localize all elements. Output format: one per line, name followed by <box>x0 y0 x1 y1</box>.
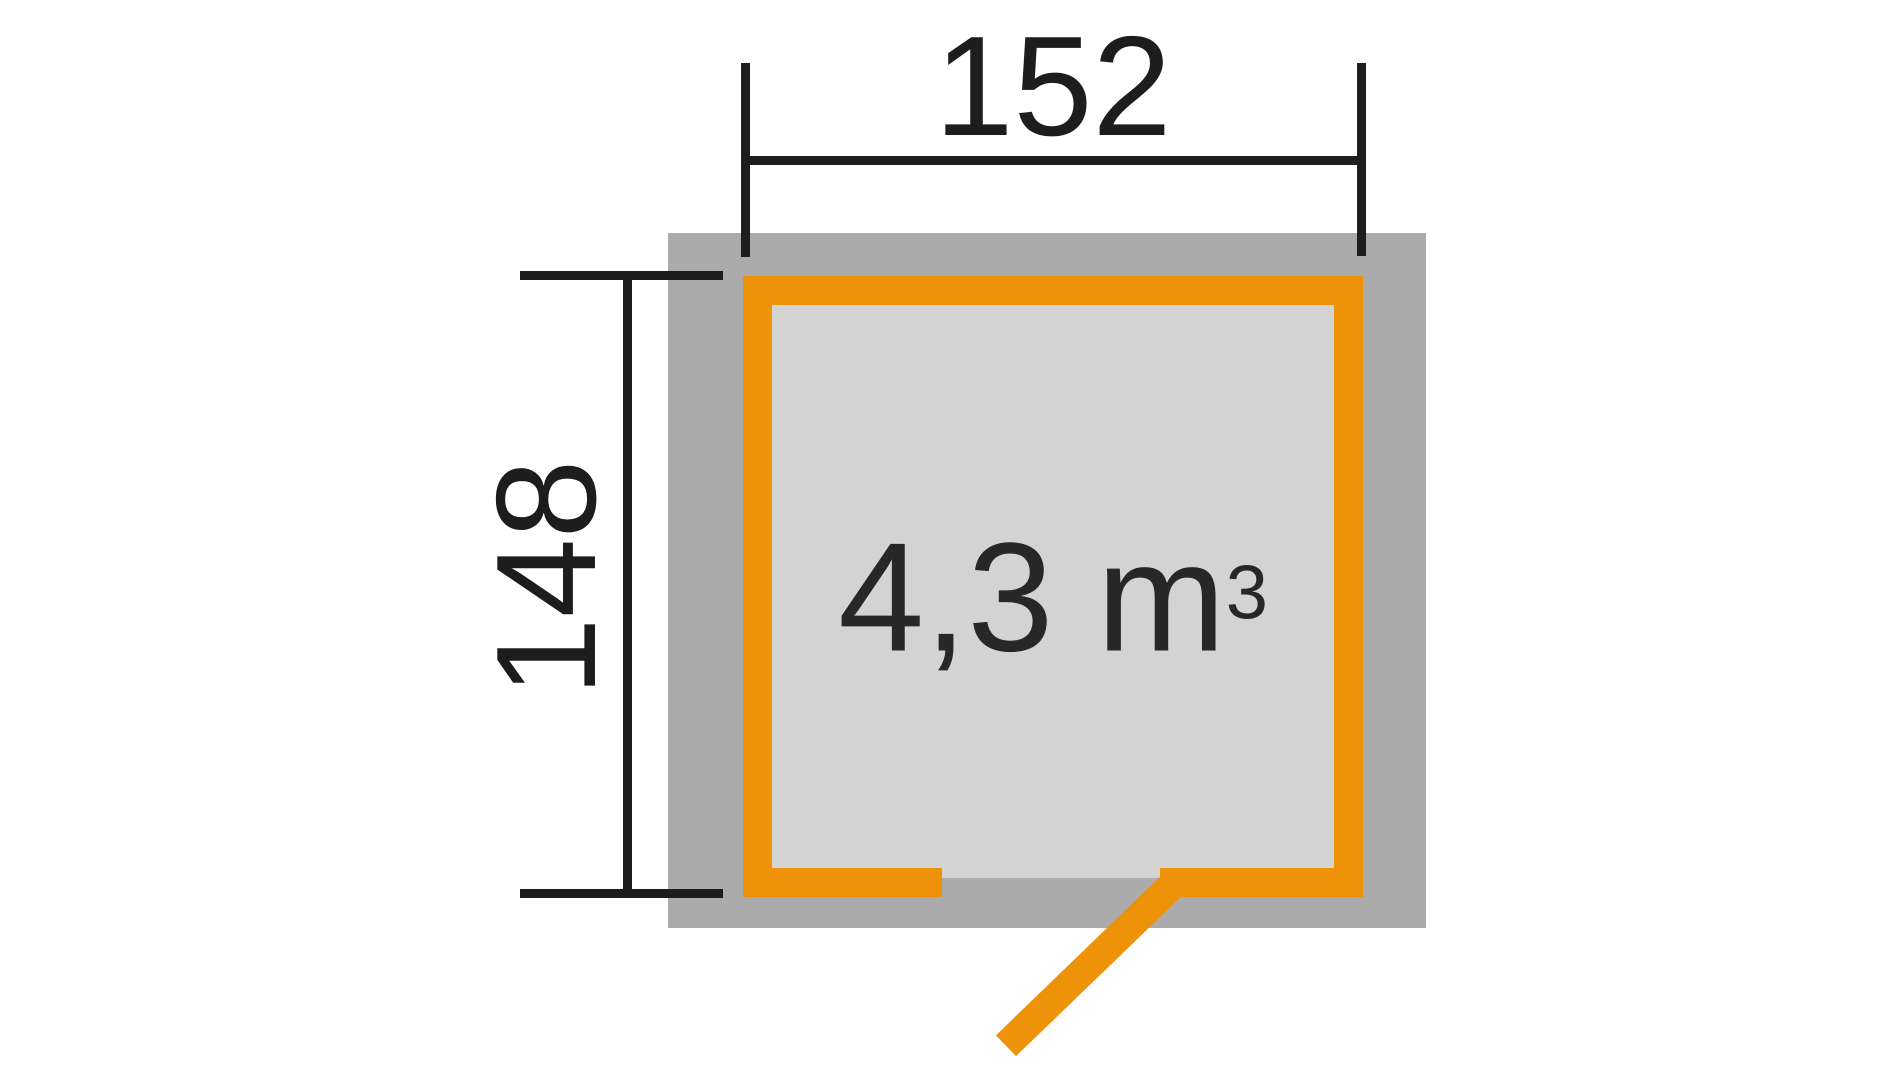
volume-value: 4,3 m <box>838 511 1226 684</box>
height-dimension-tick-bottom <box>520 889 723 898</box>
width-dimension-label: 152 <box>753 16 1353 158</box>
height-dimension-tick-top <box>520 271 723 280</box>
height-dimension-label: 148 <box>476 460 618 697</box>
width-dimension-tick-left <box>741 63 750 257</box>
door-opening-floor-strip <box>942 868 1160 878</box>
volume-exponent: 3 <box>1226 551 1268 636</box>
volume-label: 4,3 m3 <box>838 520 1268 675</box>
floor-plan-diagram: 152 148 4,3 m3 <box>0 0 1900 1069</box>
width-dimension-tick-right <box>1357 63 1366 256</box>
door-opening-foundation-strip <box>942 878 1160 897</box>
